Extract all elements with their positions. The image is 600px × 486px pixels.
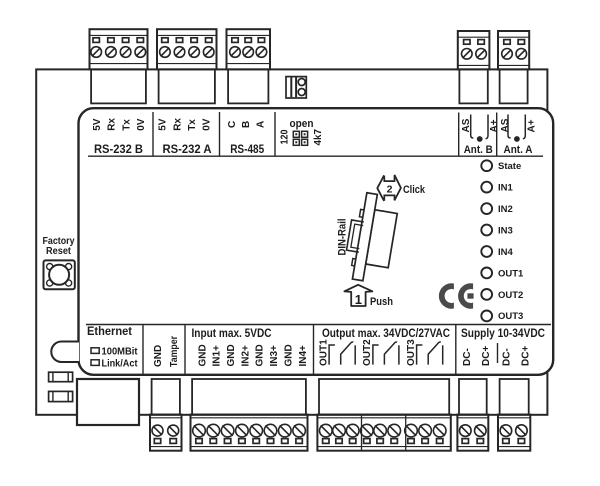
svg-text:4k7: 4k7 (313, 129, 324, 146)
svg-text:A: A (255, 121, 266, 128)
svg-text:IN4: IN4 (498, 247, 514, 258)
svg-text:OUT2: OUT2 (362, 339, 373, 366)
svg-text:GND: GND (255, 344, 266, 366)
svg-text:DC-: DC- (462, 348, 473, 366)
svg-text:IN2: IN2 (498, 204, 513, 215)
svg-text:DC+: DC+ (520, 346, 531, 366)
svg-text:Rx: Rx (172, 118, 183, 131)
svg-text:Link/Act: Link/Act (102, 359, 139, 370)
svg-text:GND: GND (153, 345, 164, 367)
svg-text:IN2+: IN2+ (240, 345, 251, 367)
svg-text:IN1: IN1 (498, 183, 514, 194)
svg-text:B: B (241, 121, 252, 128)
svg-text:C: C (227, 121, 238, 128)
svg-text:Supply 10-34VDC: Supply 10-34VDC (461, 328, 545, 340)
svg-text:IN1+: IN1+ (212, 345, 223, 367)
svg-text:OUT3: OUT3 (406, 339, 417, 366)
svg-text:IN3+: IN3+ (269, 345, 280, 367)
svg-text:Input max. 5VDC: Input max. 5VDC (192, 328, 272, 340)
svg-text:GND: GND (226, 344, 237, 366)
svg-text:IN3: IN3 (498, 225, 513, 236)
svg-text:Ant. A: Ant. A (504, 144, 533, 156)
svg-text:A+: A+ (527, 119, 538, 132)
svg-text:Tx: Tx (121, 119, 132, 131)
svg-text:DC+: DC+ (481, 346, 492, 366)
svg-text:IN4+: IN4+ (298, 345, 309, 367)
svg-text:OUT1: OUT1 (498, 268, 524, 279)
svg-text:A+: A+ (489, 119, 500, 132)
svg-text:Click: Click (403, 184, 426, 196)
svg-text:Output max. 34VDC/27VAC: Output max. 34VDC/27VAC (322, 328, 450, 340)
svg-text:0V: 0V (136, 118, 147, 131)
svg-text:100MBit: 100MBit (102, 347, 139, 358)
svg-text:OUT2: OUT2 (498, 290, 523, 301)
svg-text:DC-: DC- (502, 348, 513, 366)
svg-text:OUT1: OUT1 (318, 339, 329, 366)
svg-text:2: 2 (387, 183, 393, 195)
svg-text:RS-232 A: RS-232 A (163, 144, 212, 156)
svg-text:open: open (290, 118, 314, 130)
svg-text:RS-485: RS-485 (230, 144, 265, 156)
svg-text:Ant. B: Ant. B (464, 144, 493, 156)
svg-text:AS: AS (500, 118, 511, 132)
svg-text:Reset: Reset (46, 246, 72, 257)
svg-text:Push: Push (370, 296, 393, 308)
svg-text:Rx: Rx (107, 118, 118, 131)
svg-text:0V: 0V (202, 118, 213, 131)
svg-text:State: State (498, 161, 521, 172)
svg-text:RS-232 B: RS-232 B (94, 144, 143, 156)
svg-text:Tx: Tx (187, 119, 198, 131)
svg-text:1: 1 (355, 292, 362, 307)
svg-text:5V: 5V (92, 118, 103, 131)
svg-text:DIN-Rail: DIN-Rail (337, 219, 349, 256)
svg-text:GND: GND (197, 344, 208, 366)
svg-text:Tamper: Tamper (169, 336, 180, 367)
svg-text:GND: GND (283, 344, 294, 366)
svg-text:OUT3: OUT3 (498, 311, 523, 322)
svg-text:120: 120 (279, 129, 290, 144)
svg-text:Ethernet: Ethernet (87, 326, 132, 338)
svg-text:5V: 5V (158, 118, 169, 131)
